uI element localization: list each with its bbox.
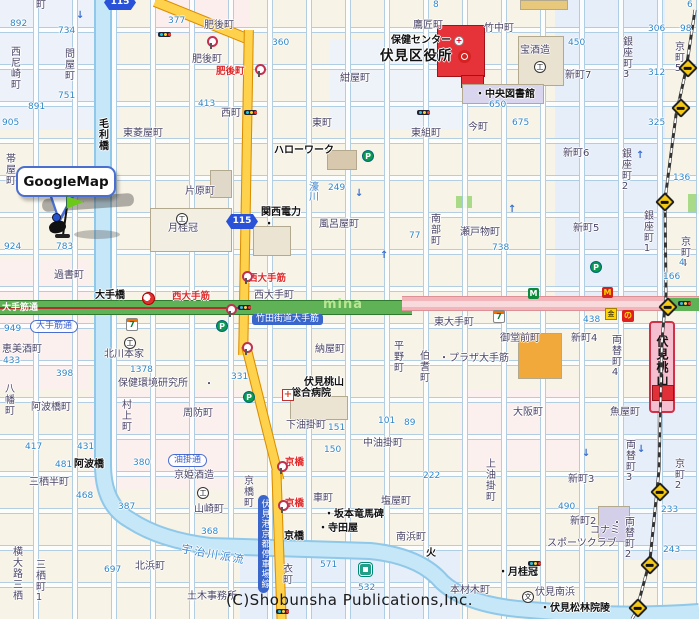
- comp-icon: [176, 213, 188, 225]
- map-label: 166: [663, 273, 680, 282]
- map-label: 上油掛町: [483, 458, 494, 502]
- map-label: 905: [2, 119, 19, 128]
- comp-icon: [197, 487, 209, 499]
- marker-shadow: [74, 230, 120, 239]
- map-label: 肥後町: [192, 55, 222, 66]
- map-label: 151: [328, 424, 345, 433]
- light-icon: [678, 301, 691, 306]
- bankm-icon: [528, 288, 539, 299]
- map-label: ・: [264, 220, 274, 231]
- map-label: 大手橋: [95, 291, 125, 302]
- map-label: 八幡町: [2, 383, 13, 416]
- map-label: 大手筋通: [30, 320, 78, 333]
- bus-icon: [254, 64, 263, 77]
- map-label: 新町3: [568, 475, 594, 486]
- map-label: 8: [433, 1, 439, 10]
- map-label: 249: [328, 184, 345, 193]
- map-label: 毛利橋: [96, 118, 107, 151]
- map-label: 阿波橋町: [31, 403, 71, 414]
- map-label: 塩屋町: [381, 497, 411, 508]
- map-label: 中油掛町: [363, 439, 403, 450]
- map-label: 417: [25, 443, 42, 452]
- map-label: 宝酒造: [520, 46, 550, 57]
- one-way-arrow-icon: ↓: [355, 188, 363, 199]
- map-label: 新町7: [565, 71, 591, 82]
- gbank-icon: [359, 563, 372, 576]
- shopy-icon: [605, 308, 617, 320]
- light-icon: [244, 110, 257, 115]
- health-icon: [454, 36, 464, 46]
- map-label: 481: [55, 461, 72, 470]
- map-label: 山崎町: [194, 505, 224, 516]
- map-label: 大手筋通: [2, 304, 38, 313]
- map-label: 325: [648, 119, 665, 128]
- light-icon: [417, 110, 430, 115]
- map-label: 伏見区役所: [380, 49, 453, 63]
- comp-icon: [124, 337, 136, 349]
- school-icon: [522, 591, 534, 603]
- one-way-arrow-icon: ↑: [380, 250, 388, 261]
- map-label: 今町: [468, 123, 488, 134]
- map-label: 77: [409, 232, 420, 241]
- map-label: 243: [663, 546, 680, 555]
- map-label: 136: [673, 174, 690, 183]
- map-label: 周防町: [183, 409, 213, 420]
- map-label: 阿波橋: [74, 460, 104, 471]
- map-label: 竹田街道大手筋: [252, 314, 323, 325]
- map-label: 銀座町2: [619, 148, 630, 193]
- govt-icon: [458, 50, 471, 63]
- map-label: 650: [489, 101, 506, 110]
- map-label: 北川本家: [104, 350, 144, 361]
- map-label: ・坂本竜馬碑: [324, 510, 384, 521]
- map-label: 南部町: [428, 213, 439, 246]
- map-label: 油掛通: [168, 454, 207, 467]
- map-label: 新町6: [563, 149, 589, 160]
- map-label: 東町: [312, 119, 332, 130]
- map-label: 伯耆町: [417, 350, 428, 383]
- map-label: ・寺田屋: [318, 524, 358, 535]
- map-label: 伏見桃山: [304, 378, 344, 389]
- map-label: 450: [568, 39, 585, 48]
- map-label: 鷹匠町: [413, 21, 443, 32]
- map-label: 431: [77, 443, 94, 452]
- light-icon: [528, 561, 541, 566]
- map-label: 751: [58, 92, 75, 101]
- map-label: 両替町3: [623, 439, 634, 484]
- map-label: 150: [324, 446, 341, 455]
- one-way-arrow-icon: ↑: [508, 204, 516, 215]
- map-label: 過書町: [54, 271, 84, 282]
- map-label: 銀座町1: [641, 210, 652, 255]
- map-label: スポーツクラブ: [547, 539, 617, 550]
- copyright-text: (C)Shobunsha Publications,Inc.: [226, 591, 473, 609]
- map-label: 783: [56, 243, 73, 252]
- map-label: mina: [323, 298, 363, 312]
- one-way-arrow-icon: ↓: [76, 10, 84, 21]
- bus-icon: [276, 461, 285, 474]
- map-label: 南浜町: [396, 533, 426, 544]
- map-label: 京橋町: [241, 475, 252, 508]
- map-label: 濠川: [306, 181, 317, 201]
- map-label: ・プラザ大手筋: [439, 354, 509, 365]
- map-label: 東菱屋町: [123, 129, 163, 140]
- map-label: 京姫酒造: [174, 471, 214, 482]
- map-label: 398: [56, 370, 73, 379]
- map-label: 490: [558, 503, 575, 512]
- map-label: 三栖町1: [33, 559, 44, 604]
- map-label: 4: [679, 259, 685, 268]
- map-label: 問屋町: [62, 48, 73, 81]
- map-label: 平野町: [391, 340, 402, 373]
- map-label: 433: [3, 357, 20, 366]
- map-label: 西町: [221, 109, 241, 120]
- map-label: 町: [36, 1, 46, 12]
- map-label: 片原町: [185, 187, 215, 198]
- map-label: 368: [201, 528, 218, 537]
- shopr-icon: [622, 310, 634, 322]
- map-label: 納屋町: [315, 345, 345, 356]
- map-label: コナミ: [590, 526, 620, 537]
- map-label: 伏見港京都停車場線: [258, 495, 269, 593]
- map-canvas[interactable]: 伏見桃山駅 町892734377肥後町肥後町肥後町西尼崎町問屋町75189190…: [0, 0, 699, 619]
- map-label: 総合病院: [291, 389, 331, 400]
- hosp-icon: [282, 389, 294, 401]
- map-label: 紺屋町: [340, 74, 370, 85]
- park-icon: [362, 150, 374, 162]
- map-label: 306: [648, 25, 665, 34]
- map-label: 北浜町: [135, 562, 165, 573]
- map-label: 331: [231, 373, 248, 382]
- map-label: 保健センター: [391, 36, 451, 47]
- map-label: 横大路三栖: [10, 546, 21, 601]
- balloon-label: GoogleMap: [23, 174, 108, 190]
- googlemap-balloon[interactable]: GoogleMap: [16, 166, 116, 197]
- map-label: 竹中町: [484, 24, 514, 35]
- bus-icon: [241, 342, 250, 355]
- map-label: 東組町: [411, 129, 441, 140]
- light-icon: [238, 305, 251, 310]
- map-label: 675: [512, 119, 529, 128]
- map-label: 下油掛町: [286, 421, 326, 432]
- map-label: 月桂冠: [168, 224, 198, 235]
- mcd-icon: [602, 287, 613, 298]
- map-label: 瀬戸物町: [460, 228, 500, 239]
- map-label: 312: [648, 69, 665, 78]
- map-label: 377: [168, 17, 185, 26]
- map-label: 衣町: [280, 563, 291, 585]
- map-label: 火: [426, 549, 436, 560]
- 711-icon: [493, 310, 505, 323]
- map-label: 1378: [130, 366, 153, 375]
- map-label: ・月桂冠: [498, 568, 538, 579]
- map-label: 380: [133, 459, 150, 468]
- map-label: 949: [4, 325, 21, 334]
- map-label: ・中央図書館: [475, 90, 535, 101]
- map-label: 村上町: [119, 399, 130, 432]
- map-label: 387: [118, 503, 135, 512]
- park-icon: [243, 391, 255, 403]
- map-label: 468: [76, 492, 93, 501]
- map-label: 924: [4, 243, 21, 252]
- bus-icon: [206, 36, 215, 49]
- map-label: ・伏見松林院陵: [540, 604, 610, 615]
- map-label: 891: [28, 103, 45, 112]
- bridge-icon: [142, 292, 155, 305]
- map-label: 京町2: [672, 458, 683, 492]
- bus-icon: [225, 304, 234, 317]
- map-label: 関西電力: [261, 208, 301, 219]
- comp-icon: [534, 61, 546, 73]
- light-icon: [158, 32, 171, 37]
- map-label: 御堂前町: [500, 334, 540, 345]
- map-label: 風呂屋町: [319, 220, 359, 231]
- route-shield: 115: [104, 0, 136, 10]
- map-label: 伏見南浜: [535, 588, 575, 599]
- map-label: ・: [204, 380, 214, 391]
- marker-figure: [55, 234, 70, 238]
- bus-icon: [277, 500, 286, 513]
- map-label: 98: [680, 25, 691, 34]
- map-label: 222: [423, 472, 440, 481]
- map-label: 保健環境研究所: [118, 379, 188, 390]
- map-label: 西大手筋: [248, 274, 286, 284]
- map-label: 西大手町: [254, 291, 294, 302]
- map-label: 西尼崎町: [8, 46, 19, 90]
- map-label: 6: [687, 1, 693, 10]
- map-label: 西大手筋: [172, 292, 210, 302]
- park-icon: [590, 261, 602, 273]
- one-way-arrow-icon: ↓: [582, 448, 590, 459]
- map-label: 101: [378, 417, 395, 426]
- route-shield: 115: [226, 214, 258, 229]
- map-label: 肥後町: [216, 67, 245, 77]
- map-label: 京橋: [284, 532, 304, 543]
- map-label: 恵美酒町: [2, 345, 42, 356]
- map-label: 89: [404, 419, 415, 428]
- map-label: 413: [198, 100, 215, 109]
- bus-icon: [241, 271, 250, 284]
- map-label: 738: [492, 244, 509, 253]
- one-way-arrow-icon: ↑: [636, 150, 644, 161]
- map-label: 両替町4: [609, 334, 620, 379]
- map-label: 360: [272, 39, 289, 48]
- map-label: ハローワーク: [274, 146, 334, 157]
- park-icon: [216, 320, 228, 332]
- map-label: 銀座町3: [620, 36, 631, 81]
- map-label: 東大手町: [434, 318, 474, 329]
- map-label: 車町: [313, 494, 333, 505]
- map-label: 734: [58, 27, 75, 36]
- 711-icon: [126, 318, 138, 331]
- map-label: 新町5: [573, 224, 599, 235]
- map-label: 438: [583, 316, 600, 325]
- map-label: 892: [10, 20, 27, 29]
- map-label: 697: [104, 566, 121, 575]
- map-label: 帯屋町: [3, 153, 14, 186]
- map-label: 大阪町: [513, 408, 543, 419]
- map-label: 三栖半町: [29, 478, 69, 489]
- map-label: 571: [320, 561, 337, 570]
- map-label: 両替町2: [622, 516, 633, 561]
- map-label: 肥後町: [204, 21, 234, 32]
- one-way-arrow-icon: ↓: [637, 444, 645, 455]
- map-label: 新町4: [571, 334, 597, 345]
- map-label: 魚屋町: [610, 408, 640, 419]
- light-icon: [276, 609, 289, 614]
- map-label: 233: [661, 506, 678, 515]
